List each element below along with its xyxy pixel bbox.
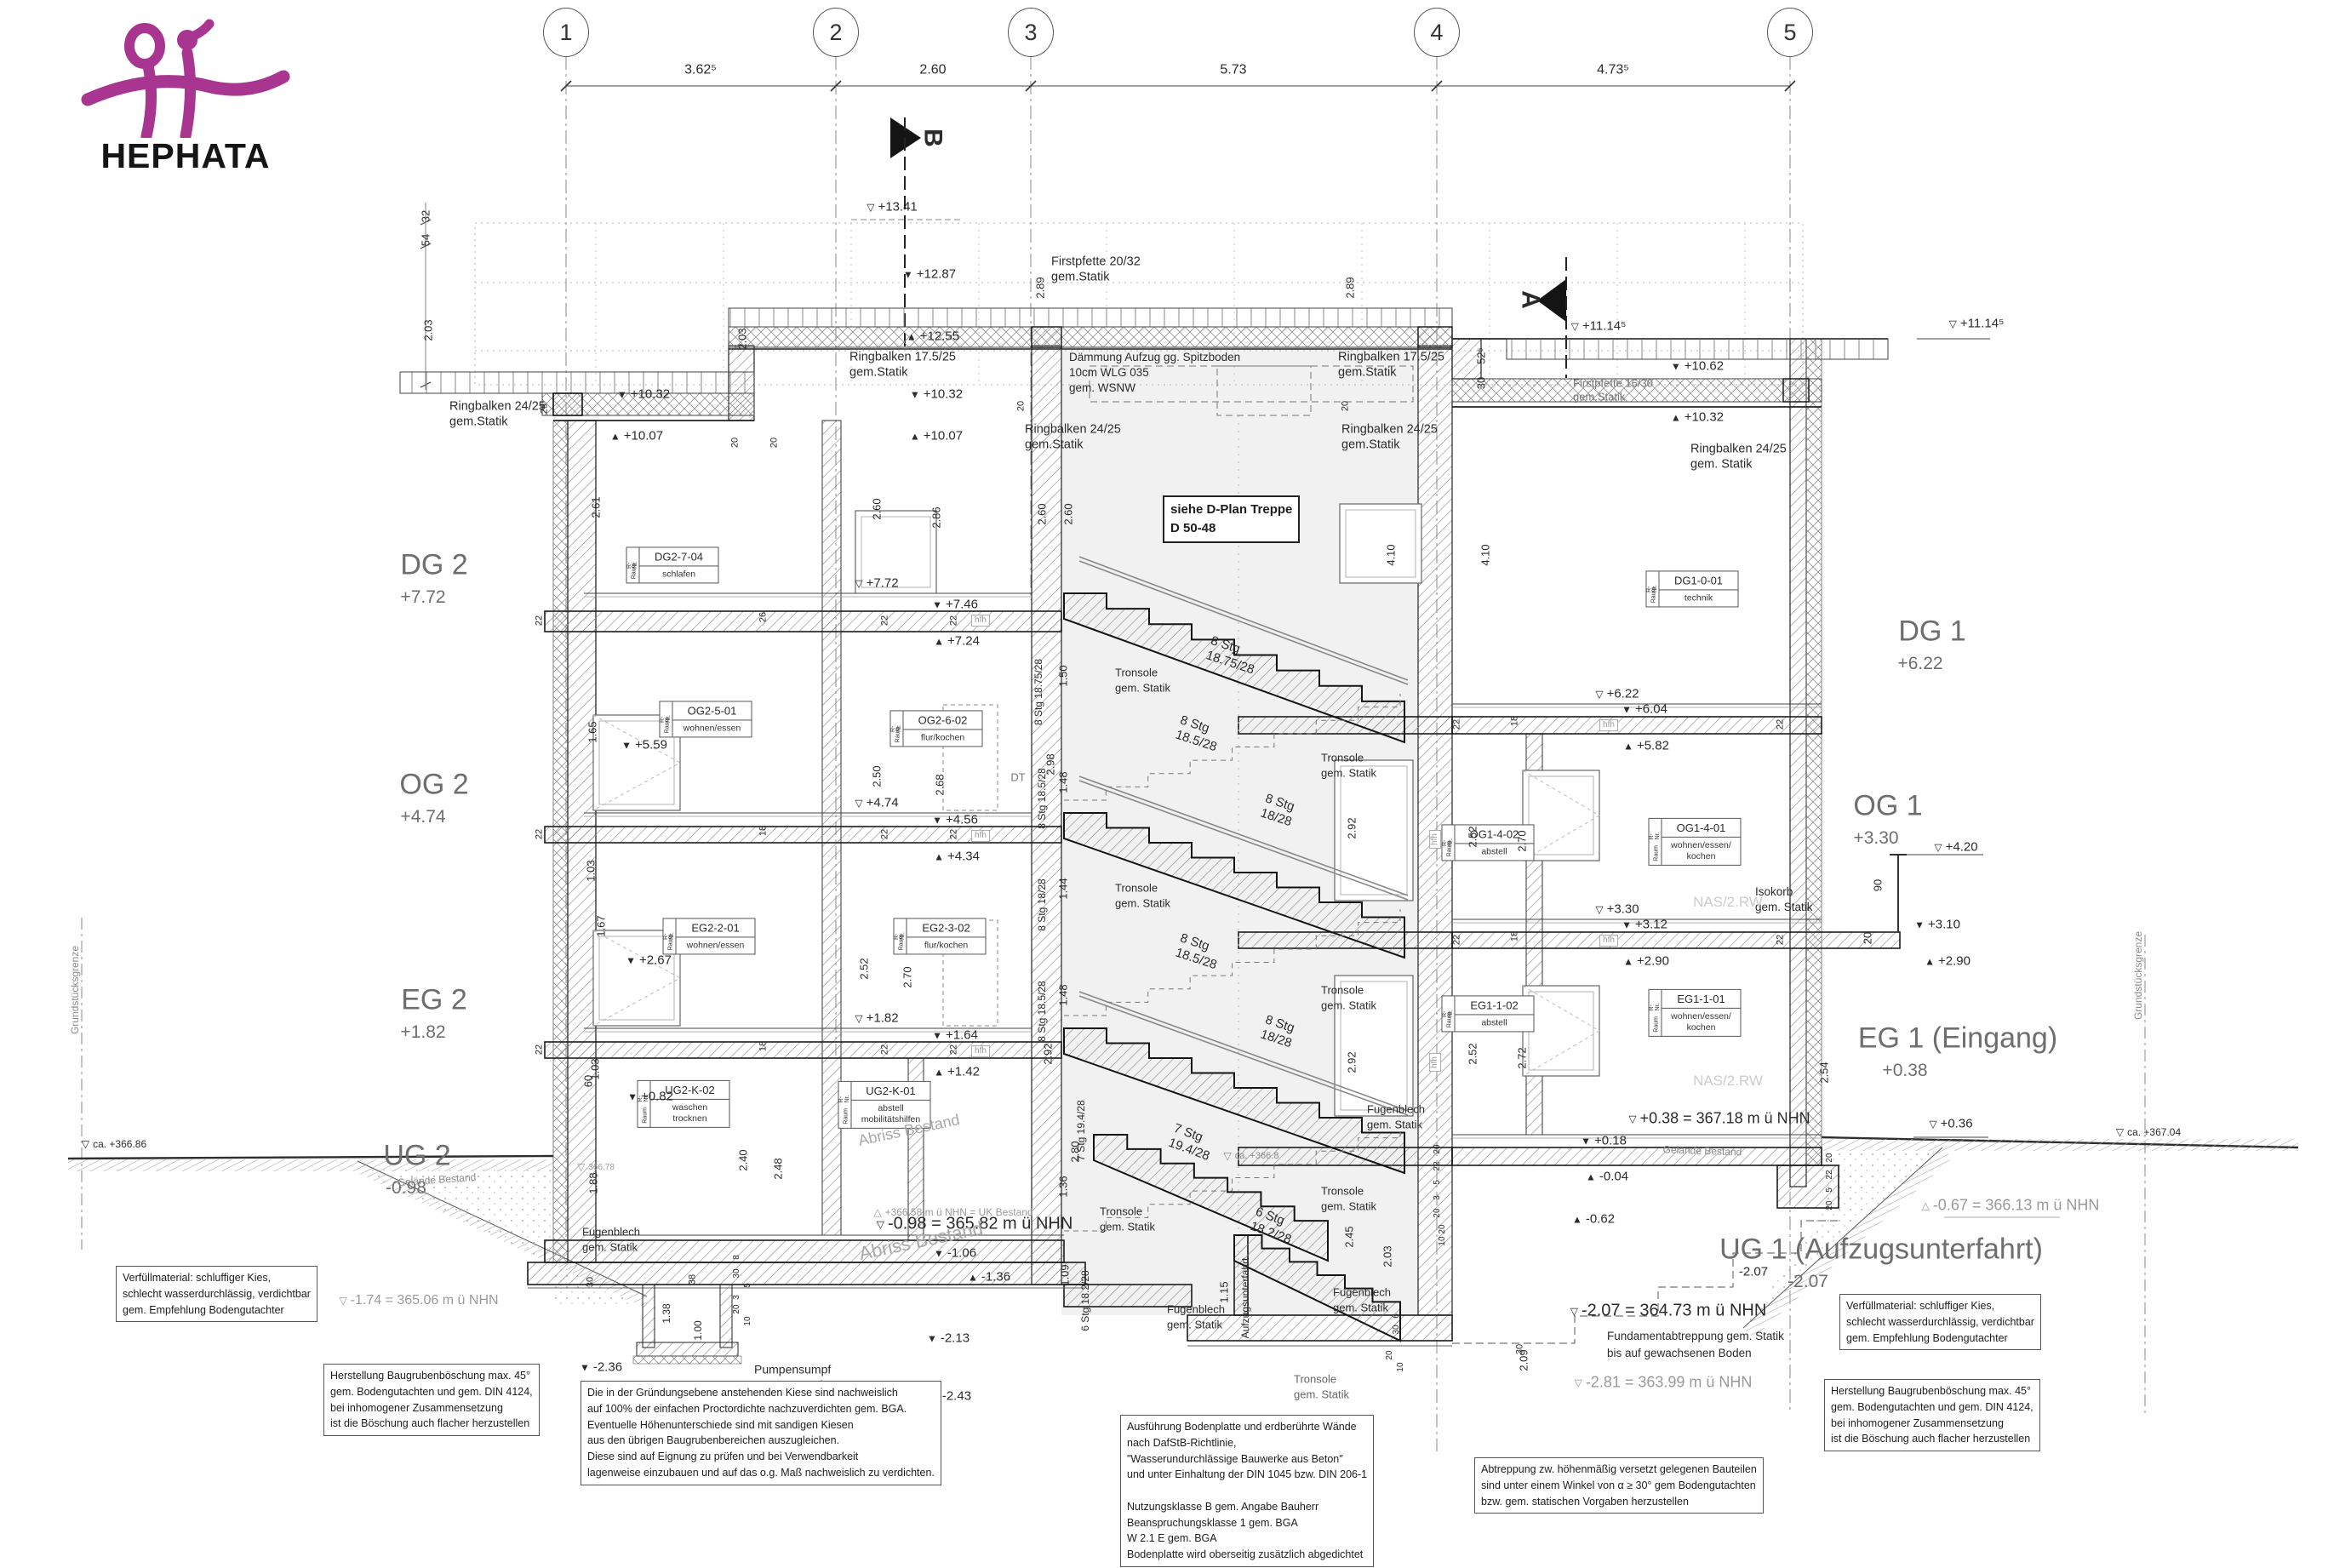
level-triangle-icon: ▽ bbox=[82, 1139, 89, 1149]
level-marker: ▽+0.36 bbox=[1929, 1117, 1972, 1131]
drawing-text: 2.40 bbox=[736, 1149, 749, 1170]
room-tag-OG1-4-01: R-Nr.RaumOG1-4-01wohnen/essen/ kochen bbox=[1649, 818, 1742, 866]
level-triangle-icon: ▼ bbox=[932, 815, 942, 825]
level-marker: ▼+10.32 bbox=[910, 387, 963, 402]
level-marker: ▼+1.64 bbox=[932, 1028, 978, 1043]
drawing-text: 22 bbox=[1776, 719, 1787, 730]
level-triangle-icon: ▲ bbox=[610, 431, 621, 441]
floor-name: EG 1 (Eingang) bbox=[1858, 1022, 2057, 1056]
note-box: Die in der Gründungsebene anstehenden Ki… bbox=[581, 1381, 941, 1485]
drawing-text: 18 bbox=[1510, 716, 1521, 726]
level-value: +4.20 bbox=[1946, 840, 1978, 855]
room-tag-rnr-label: R-Nr. bbox=[1649, 827, 1661, 839]
drawing-text: 22 bbox=[880, 829, 891, 839]
note-box-line: sind unter einem Winkel von α ≥ 30° gem … bbox=[1481, 1478, 1757, 1494]
drawing-text: 20 bbox=[769, 438, 781, 448]
level-value: -2.13 bbox=[941, 1331, 970, 1346]
level-triangle-icon: ▼ bbox=[1622, 919, 1632, 930]
drawing-text: gem. Statik bbox=[1115, 896, 1170, 909]
level-value: +1.42 bbox=[947, 1065, 980, 1079]
drawing-text: 4.10 bbox=[1384, 544, 1397, 565]
room-tag-strip: R-Nr.Raum bbox=[891, 711, 904, 746]
level-marker: ▼+3.12 bbox=[1622, 918, 1667, 932]
grid-span-dim: 2.60 bbox=[919, 63, 946, 79]
grid-span-dim: 4.73⁵ bbox=[1597, 63, 1629, 79]
note-box-line: Diese sind auf Eignung zu prüfen und bei… bbox=[587, 1449, 935, 1465]
note-box-line: aus den übrigen Baugrubenbereichen auszu… bbox=[587, 1433, 935, 1449]
drawing-text: NAS/2.RW bbox=[1693, 1073, 1763, 1090]
level-triangle-icon: ▲ bbox=[934, 1067, 944, 1077]
drawing-text: 2.50 bbox=[870, 765, 883, 787]
level-value: ca. +366.8 bbox=[1235, 1151, 1279, 1161]
room-tag-body: EG1-1-01wohnen/essen/ kochen bbox=[1662, 990, 1741, 1036]
level-triangle-icon: ▼ bbox=[1671, 361, 1681, 371]
level-triangle-icon: ▽ bbox=[1934, 842, 1942, 852]
room-tag-EG2-2-01: R-Nr.RaumEG2-2-01wohnen/essen bbox=[663, 918, 756, 954]
section-canvas: HEPHATA 12345 3.62⁵2.605.734.73⁵ DG 2+7.… bbox=[0, 0, 2328, 1568]
level-marker: ▼+4.56 bbox=[932, 813, 978, 827]
drawing-text: hfh bbox=[1429, 830, 1441, 849]
room-tag-body: UG2-K-02waschen trocknen bbox=[651, 1081, 729, 1127]
room-tag-EG2-3-02: R-Nr.RaumEG2-3-02flur/kochen bbox=[894, 918, 987, 954]
note-box-line: gem. Empfehlung Bodengutachter bbox=[1846, 1331, 2034, 1347]
room-tag-DG1-0-01: R-Nr.RaumDG1-0-01technik bbox=[1646, 570, 1739, 607]
level-triangle-icon: ▼ bbox=[617, 389, 627, 399]
level-marker: ▼+0.18 bbox=[1581, 1134, 1627, 1148]
room-use: wohnen/essen/ kochen bbox=[1662, 838, 1741, 865]
drawing-text: 7 Stg 19.4/28 bbox=[1075, 1100, 1087, 1160]
room-use: wohnen/essen bbox=[677, 937, 755, 953]
drawing-text: 8 Stg 18.75/28 bbox=[1032, 659, 1044, 725]
note-box-line: schlecht wasserdurchlässig, verdichtbar bbox=[1846, 1314, 2034, 1331]
level-marker: ▼+10.32 bbox=[617, 387, 670, 402]
drawing-text: 1.67 bbox=[594, 915, 607, 936]
drawing-text: 2.45 bbox=[1342, 1226, 1355, 1247]
drawing-text: gem. Statik bbox=[1167, 1318, 1222, 1331]
level-triangle-icon: ▼ bbox=[627, 1091, 638, 1102]
drawing-text: DT bbox=[1010, 770, 1025, 783]
drawing-text: 6 Stg 18.2/28 bbox=[1079, 1270, 1091, 1331]
room-tag-raum-label: Raum bbox=[1653, 845, 1659, 861]
level-marker: ▼-2.36 bbox=[580, 1360, 622, 1375]
level-marker: ▽+11.14⁵ bbox=[1949, 317, 2005, 331]
level-marker: ▽+7.72 bbox=[855, 576, 898, 591]
drawing-text: 6 bbox=[1392, 1313, 1402, 1319]
room-tag-body: EG2-2-01wohnen/essen bbox=[677, 918, 755, 953]
drawing-text: gem. Statik bbox=[1294, 1388, 1349, 1400]
grid-span-dim: 3.62⁵ bbox=[684, 63, 717, 79]
room-number: EG2-2-01 bbox=[677, 918, 755, 937]
drawing-text: 1.00 bbox=[692, 1320, 704, 1340]
level-value: +4.74 bbox=[867, 796, 899, 810]
level-triangle-icon: ▽ bbox=[1570, 1306, 1578, 1316]
level-marker: ▼+3.10 bbox=[1914, 918, 1960, 932]
level-triangle-icon: ▽ bbox=[2116, 1127, 2124, 1137]
level-marker: ▽+0.38 = 367.18 m ü NHN bbox=[1628, 1110, 1810, 1128]
drawing-text: 2.89 bbox=[1033, 277, 1046, 298]
room-tag-strip: R-Nr.Raum bbox=[1443, 996, 1456, 1031]
drawing-text: 2.54 bbox=[1817, 1062, 1830, 1083]
drawing-text: 32 bbox=[419, 210, 432, 222]
room-use: abstell bbox=[1456, 1015, 1534, 1031]
level-marker: ▽ca. +366.86 bbox=[82, 1138, 146, 1150]
level-value: +6.04 bbox=[1635, 702, 1667, 717]
level-value: +11.14⁵ bbox=[1582, 319, 1626, 334]
level-value: -2.07 = 364.73 m ü NHN bbox=[1582, 1302, 1766, 1321]
level-triangle-icon: ▲ bbox=[907, 331, 917, 341]
room-tag-rnr-label: R-Nr. bbox=[1649, 998, 1661, 1010]
level-marker: ▲+10.07 bbox=[910, 429, 963, 444]
level-value: -1.36 bbox=[981, 1270, 1010, 1285]
level-marker: ▲+2.90 bbox=[1623, 954, 1669, 969]
note-box-line: Beanspruchungsklasse 1 gem. BGA bbox=[1127, 1515, 1367, 1531]
level-marker: ▲-0.04 bbox=[1586, 1170, 1628, 1184]
room-tag-raum-label: Raum bbox=[895, 727, 901, 743]
level-triangle-icon: ▲ bbox=[1623, 956, 1633, 966]
level-value: +10.07 bbox=[924, 429, 963, 444]
level-triangle-icon: △ bbox=[1922, 1200, 1930, 1210]
note-box-line: Verfüllmaterial: schluffiger Kies, bbox=[1846, 1298, 2034, 1314]
level-value: +12.55 bbox=[920, 329, 959, 344]
drawing-text: gem. Statik bbox=[582, 1240, 638, 1253]
level-value: +2.90 bbox=[1637, 954, 1669, 969]
level-marker: ▲+12.55 bbox=[907, 329, 959, 344]
level-triangle-icon: ▼ bbox=[932, 599, 942, 609]
drawing-text: 18 bbox=[758, 826, 769, 836]
level-value: +0.18 bbox=[1594, 1134, 1627, 1148]
floor-name: OG 1 bbox=[1853, 790, 1922, 823]
drawing-text: 1.65 bbox=[586, 721, 598, 742]
note-box-line: Eventuelle Höhenunterschiede sind mit sa… bbox=[587, 1417, 935, 1434]
room-tag-raum-label: Raum bbox=[1446, 841, 1452, 857]
drawing-text: hfh bbox=[1599, 719, 1618, 731]
drawing-text: 20 bbox=[1341, 401, 1352, 411]
drawing-text: 2.61 bbox=[589, 496, 602, 518]
level-marker: ▲+2.90 bbox=[1925, 954, 1971, 969]
note-box: Ausführung Bodenplatte und erdberührte W… bbox=[1120, 1415, 1374, 1567]
drawing-text: 1.88 bbox=[586, 1172, 599, 1193]
drawing-text: Grundstücksgrenze bbox=[69, 946, 81, 1034]
drawing-text: 10 bbox=[1438, 1236, 1448, 1245]
drawing-text: gem. WSNW bbox=[1069, 381, 1135, 395]
room-number: OG2-6-02 bbox=[904, 711, 982, 730]
drawing-text: 22 bbox=[535, 615, 546, 626]
level-value: +5.59 bbox=[635, 738, 667, 753]
drawing-text: Ringbalken 24/25 bbox=[1690, 442, 1787, 456]
level-value: -1.74 = 365.06 m ü NHN bbox=[351, 1293, 499, 1308]
note-box-line: gem. Bodengutachten und gem. DIN 4124, bbox=[330, 1384, 533, 1400]
level-value: 366.78 bbox=[588, 1163, 615, 1172]
level-value: +10.62 bbox=[1685, 359, 1724, 374]
drawing-text: 54 bbox=[419, 234, 432, 246]
drawing-text: 1.44 bbox=[1056, 878, 1069, 899]
room-tag-body: DG2-7-04schlafen bbox=[640, 547, 718, 582]
grid-bubble-5: 5 bbox=[1767, 8, 1813, 57]
level-marker: ▽+3.30 bbox=[1595, 902, 1639, 917]
note-box-line: schlecht wasserdurchlässig, verdichtbar bbox=[123, 1286, 311, 1302]
drawing-text: gem. Statik bbox=[1321, 999, 1376, 1011]
drawing-text: gem. Statik bbox=[1367, 1118, 1422, 1130]
drawing-text: 20 bbox=[1438, 1224, 1448, 1233]
note-box-line: gem. Bodengutachten und gem. DIN 4124, bbox=[1831, 1399, 2033, 1416]
drawing-text: 38 bbox=[688, 1274, 699, 1285]
drawing-text: 2.60 bbox=[1061, 503, 1074, 524]
note-box: Verfüllmaterial: schluffiger Kies,schlec… bbox=[1839, 1294, 2041, 1350]
floor-elevation: +4.74 bbox=[400, 807, 445, 827]
note-box-line: Die in der Gründungsebene anstehenden Ki… bbox=[587, 1385, 935, 1401]
drawing-text: 30 bbox=[1515, 1344, 1526, 1354]
level-triangle-icon: ▽ bbox=[1224, 1151, 1232, 1161]
room-tag-raum-label: Raum bbox=[631, 564, 637, 580]
floor-elevation: +7.72 bbox=[400, 587, 445, 608]
level-marker: ▲+4.34 bbox=[934, 850, 980, 864]
level-marker: ▽+4.74 bbox=[855, 796, 898, 810]
drawing-text: Fugenblech bbox=[1167, 1302, 1225, 1315]
room-tag-body: OG1-4-01wohnen/essen/ kochen bbox=[1662, 819, 1741, 865]
drawing-text: 2.52 bbox=[857, 958, 870, 979]
level-triangle-icon: ▲ bbox=[1671, 412, 1681, 422]
drawing-text: gem. Statik bbox=[1690, 457, 1753, 472]
room-tag-strip: R-Nr.Raum bbox=[1647, 571, 1660, 606]
grid-bubble-1: 1 bbox=[543, 8, 589, 57]
level-marker: ▽+1.82 bbox=[855, 1011, 898, 1026]
drawing-text: 22 bbox=[880, 615, 891, 626]
drawing-text: 1.38 bbox=[661, 1303, 672, 1323]
drawing-text: gem. Statik bbox=[1333, 1301, 1388, 1313]
level-marker: ▲-0.62 bbox=[1572, 1212, 1615, 1227]
drawing-text: 1.48 bbox=[1056, 771, 1069, 793]
note-box-line: Abtreppung zw. höhenmäßig versetzt geleg… bbox=[1481, 1462, 1757, 1478]
level-value: +6.22 bbox=[1607, 687, 1639, 701]
drawing-text: hfh bbox=[971, 830, 990, 842]
drawing-text: gem. Statik bbox=[1115, 681, 1170, 694]
level-value: +2.90 bbox=[1938, 954, 1971, 969]
drawing-text: 3 bbox=[1433, 1195, 1443, 1200]
floor-name: UG 1 (Aufzugsunterfahrt) bbox=[1719, 1233, 2043, 1267]
level-triangle-icon: ▼ bbox=[910, 389, 920, 399]
drawing-text: 18 bbox=[758, 1041, 769, 1051]
level-marker: ▲-1.36 bbox=[968, 1270, 1010, 1285]
drawing-text: 20 bbox=[1433, 1144, 1443, 1153]
room-tag-body: EG2-3-02flur/kochen bbox=[907, 918, 986, 953]
drawing-text: gem. Statik bbox=[1100, 1220, 1155, 1233]
drawing-text: hfh bbox=[971, 1045, 990, 1057]
level-value: -0.62 bbox=[1586, 1212, 1615, 1227]
drawing-text: 22 bbox=[949, 1044, 960, 1055]
room-use: schlafen bbox=[640, 566, 718, 582]
drawing-text: bis auf gewachsenen Boden bbox=[1607, 1347, 1752, 1360]
level-triangle-icon: ▼ bbox=[1622, 704, 1632, 714]
drawing-text: 20 bbox=[1433, 1208, 1443, 1217]
level-triangle-icon: ▼ bbox=[932, 1030, 942, 1040]
level-triangle-icon: ▽ bbox=[1929, 1119, 1936, 1129]
drawing-text: gem.Statik bbox=[1051, 270, 1110, 284]
note-box-line: bzw. gem. statischen Vorgaben herzustell… bbox=[1481, 1494, 1757, 1510]
drawing-text: gem. Statik bbox=[1321, 1199, 1376, 1212]
drawing-text: 2.92 bbox=[1345, 1051, 1358, 1073]
level-value: ca. +366.86 bbox=[93, 1138, 146, 1150]
drawing-text: gem. Statik bbox=[1321, 766, 1376, 779]
drawing-text: 22 bbox=[1433, 1161, 1443, 1170]
level-value: +4.34 bbox=[947, 850, 980, 864]
drawing-text: 1.15 bbox=[1217, 1281, 1230, 1302]
level-value: -2.07 bbox=[1739, 1265, 1768, 1279]
level-marker: ▽ca. +367.04 bbox=[2116, 1126, 2181, 1138]
drawing-text: 1.36 bbox=[1056, 1176, 1069, 1197]
drawing-text: Ringbalken 24/25 bbox=[1025, 422, 1121, 437]
grid-bubble-2: 2 bbox=[813, 8, 859, 57]
drawing-text: Ringbalken 24/25 bbox=[449, 399, 546, 414]
drawing-text: 26 bbox=[758, 612, 769, 622]
drawing-text: 2.03 bbox=[1381, 1245, 1393, 1267]
drawing-text: 5 bbox=[1825, 1187, 1835, 1193]
drawing-text: 90 bbox=[1871, 879, 1884, 891]
level-value: -0.04 bbox=[1599, 1170, 1628, 1184]
level-triangle-icon: ▽ bbox=[855, 1013, 862, 1023]
level-marker: ▲+1.42 bbox=[934, 1065, 980, 1079]
drawing-text: 2.03 bbox=[421, 319, 434, 340]
room-tag-OG2-6-02: R-Nr.RaumOG2-6-02flur/kochen bbox=[890, 710, 983, 747]
note-box-line: auf 100% der einfachen Proctordichte nac… bbox=[587, 1401, 935, 1417]
level-triangle-icon: ▽ bbox=[855, 578, 862, 588]
note-box-line: D 50-48 bbox=[1170, 519, 1292, 538]
drawing-text: Grundstücksgrenze bbox=[2132, 931, 2144, 1020]
level-marker: ▼+6.04 bbox=[1622, 702, 1667, 717]
level-marker: ▽ca. +366.8 bbox=[1224, 1151, 1279, 1161]
note-box-line: ist die Böschung auch flacher herzustell… bbox=[330, 1416, 533, 1432]
grid-bubble-4: 4 bbox=[1414, 8, 1460, 57]
level-value: +7.24 bbox=[947, 634, 980, 649]
room-tag-strip: R-Nr.Raum bbox=[1650, 990, 1662, 1036]
level-value: -2.81 = 363.99 m ü NHN bbox=[1586, 1374, 1753, 1392]
drawing-text: gem.Statik bbox=[1573, 390, 1625, 403]
level-value: +0.82 bbox=[641, 1090, 673, 1104]
room-tag-raum-label: Raum bbox=[664, 718, 670, 734]
drawing-text: Ringbalken 17.5/25 bbox=[1338, 350, 1444, 364]
note-box-line: "Wasserundurchlässige Bauwerke aus Beton… bbox=[1127, 1451, 1367, 1468]
drawing-text: 2.92 bbox=[1041, 1043, 1054, 1064]
level-triangle-icon: ▽ bbox=[867, 202, 874, 212]
room-tag-DG2-7-04: R-Nr.RaumDG2-7-04schlafen bbox=[626, 547, 719, 583]
drawing-text: 4.10 bbox=[1479, 544, 1491, 565]
drawing-text: 2.89 bbox=[1343, 277, 1356, 298]
room-number: EG1-1-02 bbox=[1456, 996, 1534, 1015]
level-value: +10.32 bbox=[1685, 410, 1724, 425]
floor-name: DG 2 bbox=[400, 549, 467, 582]
drawing-text: 20 bbox=[1825, 1200, 1835, 1210]
room-tag-strip: R-Nr.Raum bbox=[627, 547, 640, 582]
room-tag-rnr-label: R-Nr. bbox=[838, 1090, 850, 1102]
level-marker: △-0.67 = 366.13 m ü NHN bbox=[1922, 1197, 2100, 1215]
drawing-text: Tronsole bbox=[1321, 1184, 1364, 1197]
drawing-text: hfh bbox=[971, 615, 990, 627]
floor-elevation: +6.22 bbox=[1897, 654, 1942, 674]
room-number: DG2-7-04 bbox=[640, 547, 718, 566]
drawing-text: Tronsole bbox=[1321, 983, 1364, 996]
drawing-text: Tronsole bbox=[1294, 1372, 1336, 1385]
drawing-text: Tronsole bbox=[1115, 881, 1158, 894]
floor-name: UG 2 bbox=[383, 1140, 450, 1173]
level-triangle-icon: ▽ bbox=[577, 1162, 585, 1172]
drawing-text: 8 bbox=[732, 1255, 742, 1260]
room-tag-raum-label: Raum bbox=[898, 935, 904, 951]
logo-text: HEPHATA bbox=[100, 136, 270, 176]
room-use: technik bbox=[1660, 590, 1738, 606]
note-box: siehe D-Plan TreppeD 50-48 bbox=[1163, 495, 1300, 543]
level-value: +3.12 bbox=[1635, 918, 1667, 932]
room-tag-strip: R-Nr.Raum bbox=[839, 1082, 852, 1128]
room-tag-EG1-1-02: R-Nr.RaumEG1-1-02abstell bbox=[1442, 995, 1535, 1032]
drawing-text: 20 bbox=[1861, 932, 1873, 944]
level-marker: ▽-2.07 = 364.73 m ü NHN bbox=[1570, 1302, 1767, 1321]
level-value: -2.43 bbox=[942, 1389, 971, 1404]
drawing-text: 1.48 bbox=[1056, 984, 1069, 1005]
room-use: flur/kochen bbox=[907, 937, 986, 953]
drawing-text: 1.03 bbox=[584, 860, 597, 881]
level-value: +12.87 bbox=[917, 267, 956, 282]
level-triangle-icon: ▽ bbox=[1571, 321, 1579, 331]
drawing-text: 1.50 bbox=[1056, 665, 1069, 686]
level-triangle-icon: ▼ bbox=[934, 1248, 944, 1258]
floor-elevation: +3.30 bbox=[1853, 828, 1898, 849]
drawing-text: 5 bbox=[1433, 1180, 1443, 1185]
level-marker: ▲+10.32 bbox=[1671, 410, 1724, 425]
room-use: wohnen/essen bbox=[673, 720, 752, 736]
room-number: UG2-K-01 bbox=[852, 1082, 930, 1101]
level-marker: ▽-2.81 = 363.99 m ü NHN bbox=[1575, 1374, 1753, 1392]
level-marker: ▼+10.62 bbox=[1671, 359, 1724, 374]
drawing-text: Fugenblech bbox=[582, 1225, 640, 1238]
note-box: Abtreppung zw. höhenmäßig versetzt geleg… bbox=[1474, 1457, 1764, 1514]
level-triangle-icon: ▼ bbox=[927, 1333, 937, 1343]
drawing-text: 20 bbox=[1385, 1350, 1395, 1359]
note-box-line: Bodenplatte wird oberseitig zusätzlich a… bbox=[1127, 1547, 1367, 1563]
note-box-line: Nutzungsklasse B gem. Angabe Bauherr bbox=[1127, 1499, 1367, 1515]
note-box-line bbox=[1127, 1483, 1367, 1499]
level-marker: ▽+6.22 bbox=[1595, 687, 1639, 701]
level-triangle-icon: ▲ bbox=[934, 636, 944, 646]
drawing-text: 25 bbox=[540, 403, 551, 414]
drawing-text: hfh bbox=[1599, 935, 1618, 947]
level-value: +10.32 bbox=[631, 387, 670, 402]
note-box: Herstellung Baugrubenböschung max. 45°ge… bbox=[1824, 1379, 2040, 1451]
drawing-text: 2.60 bbox=[870, 498, 883, 519]
drawing-text: 5 bbox=[743, 1283, 753, 1288]
drawing-text: 2.03 bbox=[735, 328, 748, 349]
room-tag-raum-label: Raum bbox=[642, 1107, 648, 1124]
level-value: +4.56 bbox=[946, 813, 978, 827]
level-triangle-icon: ▽ bbox=[1595, 904, 1603, 914]
room-tag-raum-label: Raum bbox=[667, 935, 673, 951]
level-value: +1.64 bbox=[946, 1028, 978, 1043]
drawing-text: 8 Stg 18/28 bbox=[1036, 878, 1048, 930]
room-tag-strip: R-Nr.Raum bbox=[1443, 825, 1456, 860]
room-use: waschen trocknen bbox=[651, 1100, 729, 1127]
drawing-text: gem.Statik bbox=[1338, 365, 1397, 380]
level-marker: ▽-1.74 = 365.06 m ü NHN bbox=[339, 1293, 498, 1308]
note-box-line: Ausführung Bodenplatte und erdberührte W… bbox=[1127, 1419, 1367, 1435]
note-box: Herstellung Baugrubenböschung max. 45°ge… bbox=[323, 1364, 540, 1436]
drawing-text: 22 bbox=[1452, 719, 1463, 730]
note-box-line: bei inhomogener Zusammensetzung bbox=[330, 1400, 533, 1416]
level-triangle-icon: ▲ bbox=[1623, 741, 1633, 751]
level-triangle-icon: ▼ bbox=[903, 269, 913, 279]
level-marker: △+366.58 m ü NHN = UK Bestand bbox=[873, 1206, 1032, 1218]
room-number: OG2-5-01 bbox=[673, 701, 752, 720]
level-marker: ▲+7.24 bbox=[934, 634, 980, 649]
level-value: +7.72 bbox=[867, 576, 899, 591]
floor-name: OG 2 bbox=[399, 769, 468, 802]
